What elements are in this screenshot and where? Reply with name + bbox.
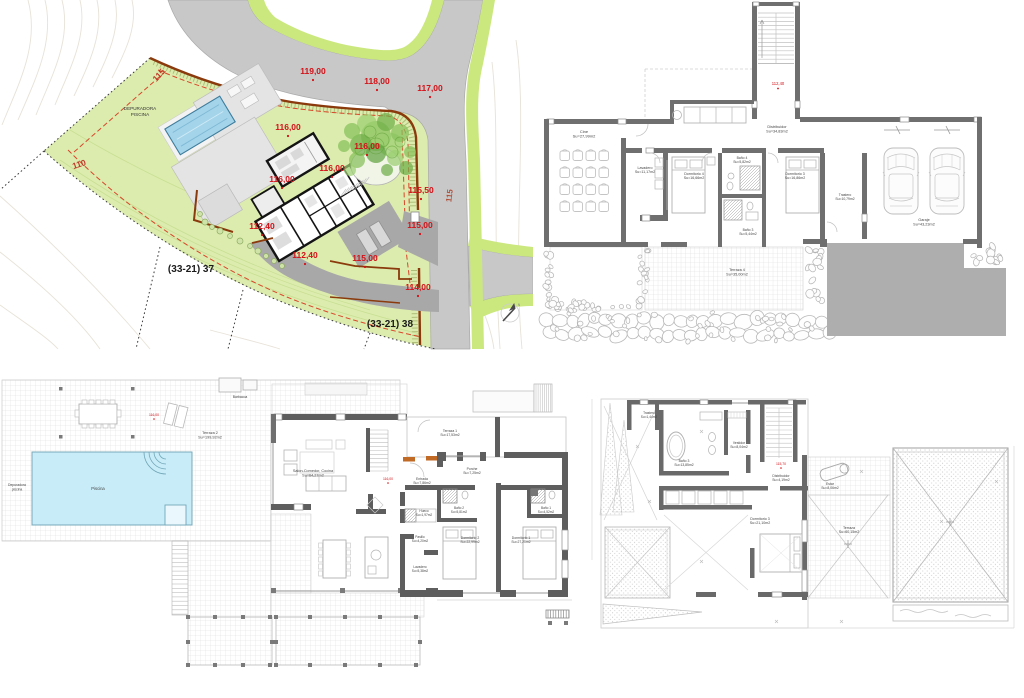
svg-text:Su=4,20m2: Su=4,20m2 — [412, 539, 429, 543]
svg-text:116,00: 116,00 — [354, 141, 380, 151]
svg-text:119,00: 119,00 — [300, 66, 326, 76]
svg-text:Su=8,06m2: Su=8,06m2 — [821, 486, 839, 490]
svg-text:Piscina: Piscina — [91, 486, 105, 491]
svg-text:Su=34,83m2: Su=34,83m2 — [766, 129, 788, 133]
svg-text:Su=16,66m2: Su=16,66m2 — [684, 176, 704, 180]
svg-text:Su=21,10m2: Su=21,10m2 — [750, 521, 770, 525]
svg-text:116,00: 116,00 — [319, 163, 345, 173]
svg-text:115: 115 — [444, 188, 455, 202]
svg-text:(33-21) 38: (33-21) 38 — [367, 319, 414, 330]
svg-text:Su=4,19m2: Su=4,19m2 — [772, 478, 790, 482]
svg-text:112,40: 112,40 — [772, 81, 785, 86]
svg-text:116,00: 116,00 — [383, 477, 393, 481]
svg-text:Terraza 2: Terraza 2 — [202, 431, 218, 435]
svg-text:Su=1,44m2: Su=1,44m2 — [641, 415, 658, 419]
svg-text:Depuradora: Depuradora — [8, 483, 26, 487]
svg-text:Su=8,04m2: Su=8,04m2 — [730, 445, 748, 449]
svg-text:Su=5,82m2: Su=5,82m2 — [733, 160, 751, 164]
svg-text:Su=4,52m2: Su=4,52m2 — [538, 510, 555, 514]
svg-text:Su=7,86m2: Su=7,86m2 — [413, 481, 431, 485]
svg-text:Su=17,53m2: Su=17,53m2 — [440, 433, 459, 437]
svg-text:Su=35,00m2: Su=35,00m2 — [726, 272, 748, 276]
svg-text:115,70: 115,70 — [776, 462, 786, 466]
svg-text:115,50: 115,50 — [408, 185, 434, 195]
svg-text:112,40: 112,40 — [292, 250, 318, 260]
svg-text:116,00: 116,00 — [269, 174, 295, 184]
svg-text:Su=43,23m2: Su=43,23m2 — [913, 222, 935, 226]
svg-text:DEPURADORA: DEPURADORA — [124, 106, 157, 111]
svg-text:118,00: 118,00 — [364, 76, 390, 86]
svg-text:116,00: 116,00 — [275, 122, 301, 132]
svg-text:Su=5,81m2: Su=5,81m2 — [451, 510, 468, 514]
svg-text:116,00: 116,00 — [149, 413, 159, 417]
svg-text:Barbacoa: Barbacoa — [233, 395, 248, 399]
svg-text:115,00: 115,00 — [407, 220, 433, 230]
svg-text:114,00: 114,00 — [405, 282, 431, 292]
svg-text:Salon-Comedor, Cocina: Salon-Comedor, Cocina — [293, 469, 334, 473]
svg-text:Su=27,99m2: Su=27,99m2 — [573, 134, 597, 139]
svg-text:Su=27,21m2: Su=27,21m2 — [511, 540, 530, 544]
svg-text:piscina: piscina — [12, 488, 23, 492]
svg-text:115,00: 115,00 — [352, 253, 378, 263]
svg-text:Su=60,15m2: Su=60,15m2 — [839, 530, 859, 534]
svg-text:Terraza 4: Terraza 4 — [729, 268, 745, 272]
svg-text:PISCINA: PISCINA — [131, 112, 150, 117]
svg-text:Su=13,85m2: Su=13,85m2 — [674, 463, 693, 467]
svg-text:Su=5,44m2: Su=5,44m2 — [739, 232, 757, 236]
svg-text:(33-21) 37: (33-21) 37 — [168, 264, 215, 275]
svg-text:Su=64,27m2: Su=64,27m2 — [302, 473, 324, 477]
svg-text:Su=199,92m2: Su=199,92m2 — [198, 435, 222, 439]
svg-text:Su=10,79m2: Su=10,79m2 — [835, 197, 854, 201]
svg-text:117,00: 117,00 — [417, 83, 443, 93]
svg-text:Su=7,25m2: Su=7,25m2 — [463, 471, 481, 475]
svg-text:Garaje: Garaje — [918, 218, 929, 222]
svg-text:Su=11,17m2: Su=11,17m2 — [635, 170, 655, 174]
svg-text:Distribuidor: Distribuidor — [767, 125, 787, 129]
svg-text:Su=5,38m2: Su=5,38m2 — [412, 569, 429, 573]
svg-text:Su=1,97m2: Su=1,97m2 — [416, 513, 433, 517]
svg-text:Su=16,86m2: Su=16,86m2 — [785, 176, 805, 180]
svg-text:Su=22,99m2: Su=22,99m2 — [460, 540, 479, 544]
svg-text:112,40: 112,40 — [249, 221, 275, 231]
